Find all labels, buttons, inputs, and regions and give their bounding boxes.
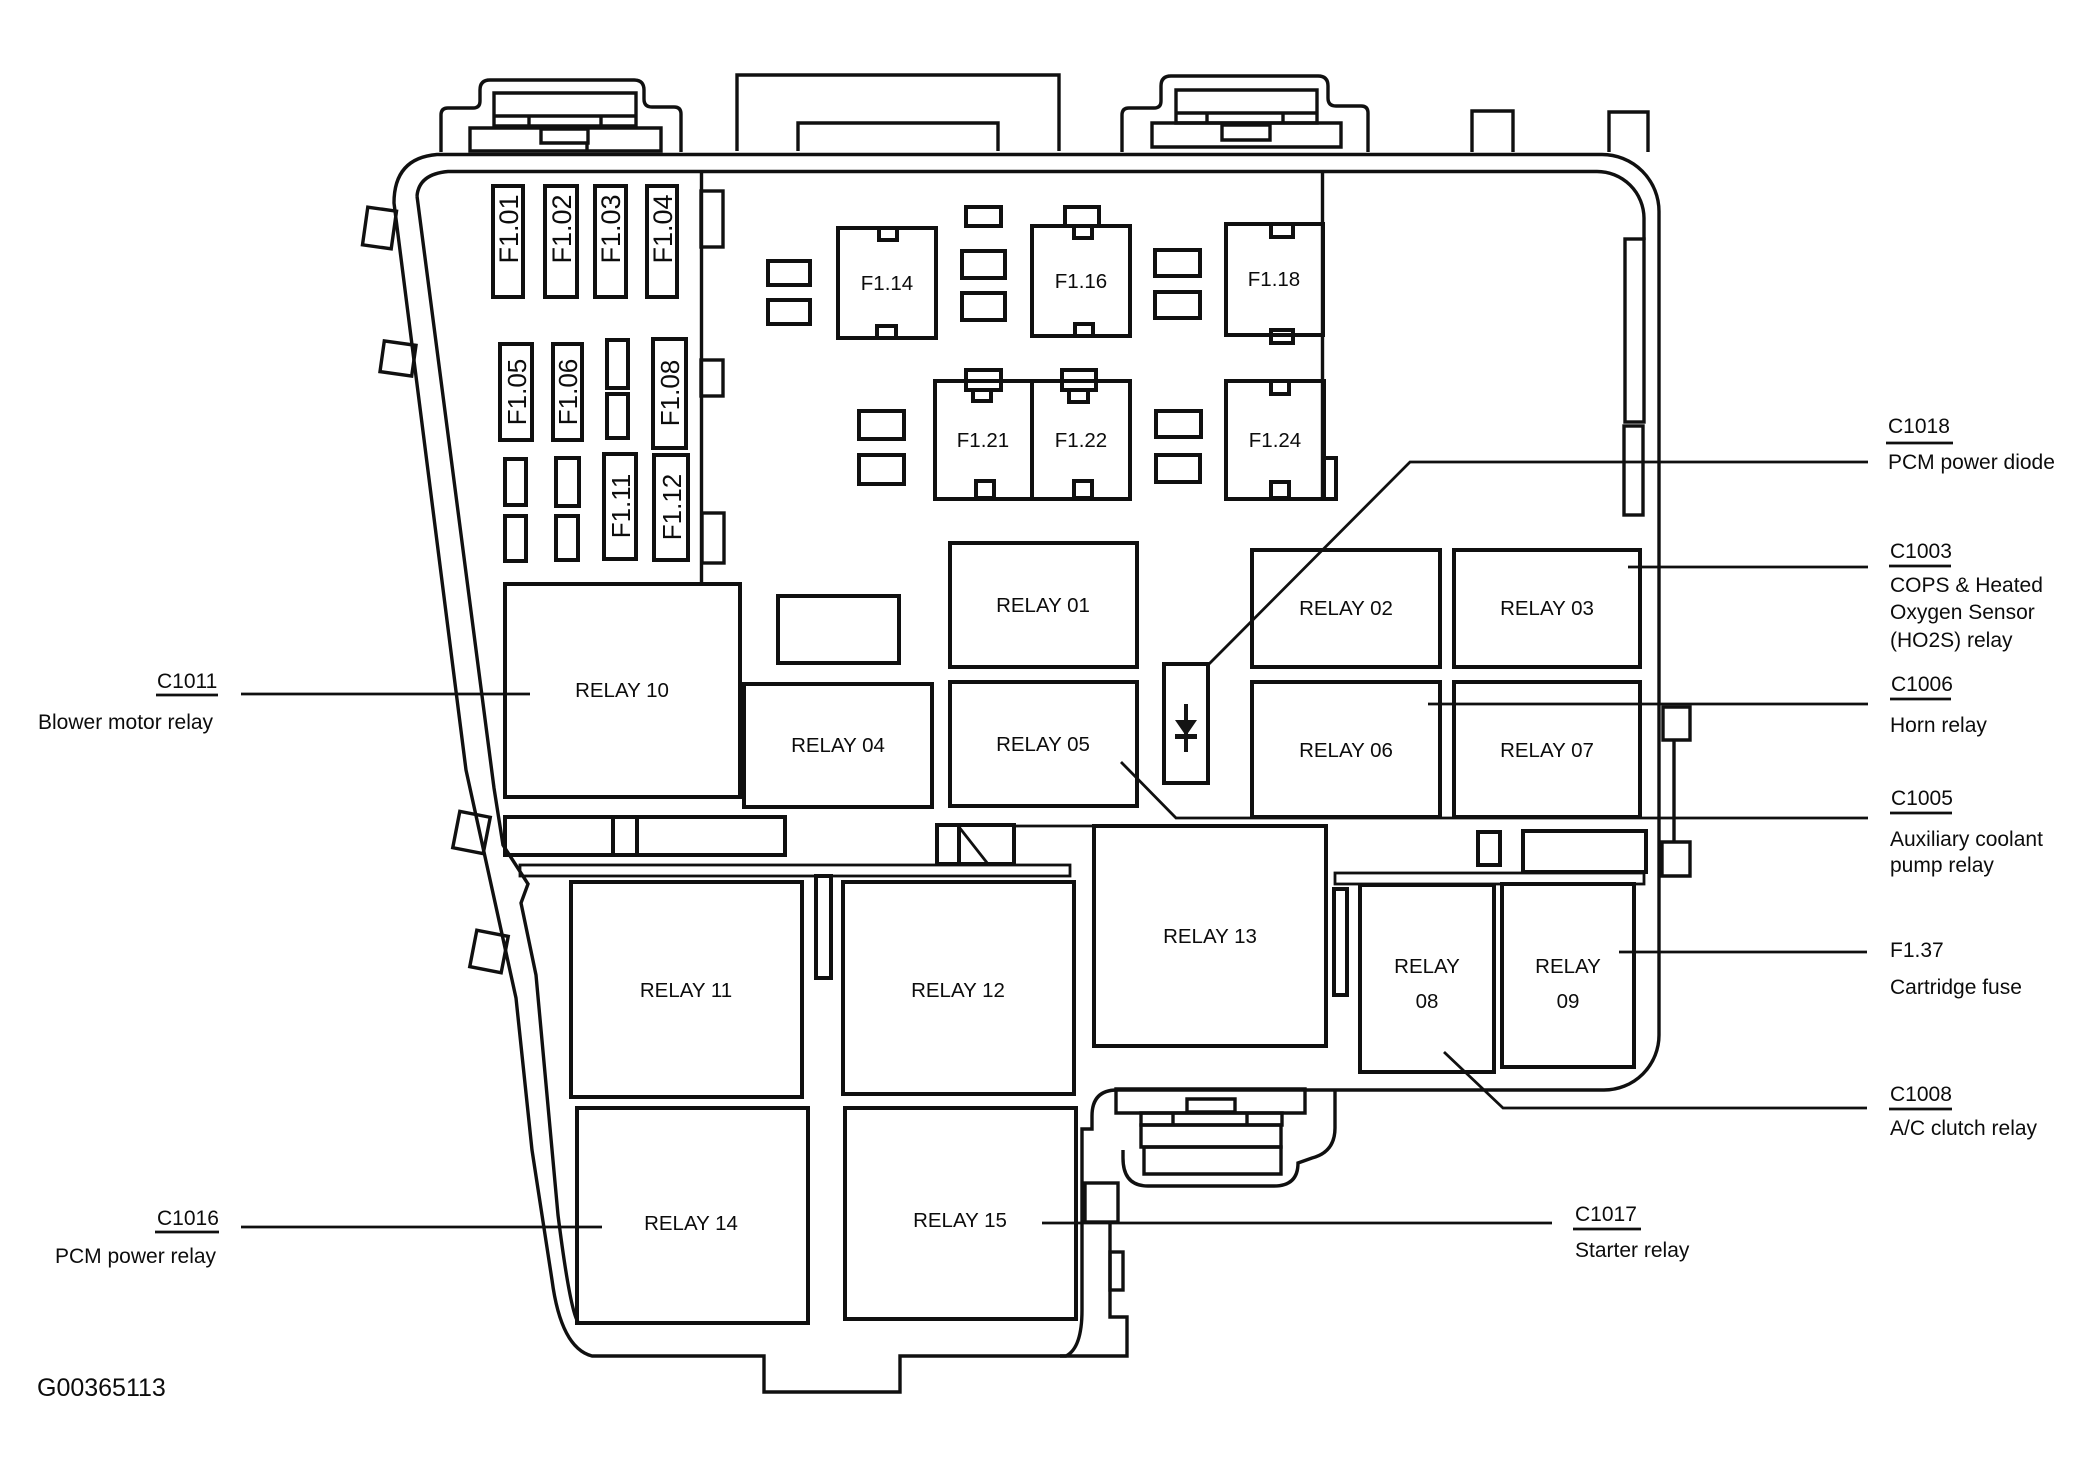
svg-text:F1.06: F1.06 bbox=[553, 359, 583, 426]
svg-text:RELAY 14: RELAY 14 bbox=[644, 1212, 738, 1235]
svg-text:C1003: C1003 bbox=[1890, 540, 1952, 563]
svg-text:F1.02: F1.02 bbox=[547, 194, 577, 263]
svg-text:RELAY 10: RELAY 10 bbox=[575, 679, 669, 702]
svg-text:F1.22: F1.22 bbox=[1055, 429, 1107, 452]
svg-text:RELAY 01: RELAY 01 bbox=[996, 594, 1090, 617]
svg-text:RELAY 04: RELAY 04 bbox=[791, 734, 885, 757]
svg-text:F1.01: F1.01 bbox=[494, 194, 524, 263]
svg-text:08: 08 bbox=[1416, 990, 1439, 1013]
svg-text:RELAY 15: RELAY 15 bbox=[913, 1209, 1007, 1232]
svg-text:F1.03: F1.03 bbox=[596, 194, 626, 263]
svg-text:RELAY: RELAY bbox=[1394, 955, 1460, 978]
svg-text:COPS & Heated: COPS & Heated bbox=[1890, 574, 2043, 597]
svg-text:C1016: C1016 bbox=[157, 1207, 219, 1230]
svg-text:09: 09 bbox=[1557, 990, 1580, 1013]
svg-text:F1.14: F1.14 bbox=[861, 272, 913, 295]
svg-text:C1008: C1008 bbox=[1890, 1083, 1952, 1106]
svg-text:RELAY 12: RELAY 12 bbox=[911, 979, 1005, 1002]
svg-text:F1.12: F1.12 bbox=[657, 474, 687, 541]
svg-text:C1005: C1005 bbox=[1891, 787, 1953, 810]
svg-text:RELAY 03: RELAY 03 bbox=[1500, 597, 1594, 620]
svg-text:RELAY 06: RELAY 06 bbox=[1299, 739, 1393, 762]
svg-text:Starter relay: Starter relay bbox=[1575, 1239, 1690, 1262]
svg-text:RELAY 07: RELAY 07 bbox=[1500, 739, 1594, 762]
svg-text:RELAY 11: RELAY 11 bbox=[640, 979, 732, 1002]
svg-text:F1.18: F1.18 bbox=[1248, 268, 1300, 291]
svg-text:C1011: C1011 bbox=[157, 670, 217, 693]
svg-text:pump relay: pump relay bbox=[1890, 854, 1994, 877]
svg-text:RELAY 13: RELAY 13 bbox=[1163, 925, 1257, 948]
svg-text:F1.04: F1.04 bbox=[648, 194, 678, 263]
svg-text:F1.37: F1.37 bbox=[1890, 939, 1944, 962]
svg-text:RELAY 02: RELAY 02 bbox=[1299, 597, 1393, 620]
svg-text:Auxiliary coolant: Auxiliary coolant bbox=[1890, 828, 2043, 851]
svg-text:(HO2S) relay: (HO2S) relay bbox=[1890, 629, 2013, 652]
svg-text:PCM power diode: PCM power diode bbox=[1888, 451, 2055, 474]
svg-text:F1.05: F1.05 bbox=[502, 359, 532, 426]
svg-text:C1017: C1017 bbox=[1575, 1203, 1637, 1226]
svg-text:Blower motor relay: Blower motor relay bbox=[38, 711, 214, 734]
svg-text:F1.08: F1.08 bbox=[655, 360, 685, 427]
svg-text:Cartridge fuse: Cartridge fuse bbox=[1890, 976, 2022, 999]
svg-text:A/C clutch relay: A/C clutch relay bbox=[1890, 1117, 2038, 1140]
svg-text:F1.11: F1.11 bbox=[606, 474, 636, 539]
svg-text:RELAY: RELAY bbox=[1535, 955, 1601, 978]
svg-text:RELAY 05: RELAY 05 bbox=[996, 733, 1090, 756]
svg-text:G00365113: G00365113 bbox=[37, 1374, 166, 1402]
svg-text:C1006: C1006 bbox=[1891, 673, 1953, 696]
svg-text:F1.21: F1.21 bbox=[957, 429, 1009, 452]
svg-text:F1.16: F1.16 bbox=[1055, 270, 1107, 293]
svg-text:PCM power relay: PCM power relay bbox=[55, 1245, 217, 1268]
svg-text:Horn relay: Horn relay bbox=[1890, 714, 1987, 737]
svg-text:Oxygen Sensor: Oxygen Sensor bbox=[1890, 601, 2035, 624]
svg-text:F1.24: F1.24 bbox=[1249, 429, 1301, 452]
svg-text:C1018: C1018 bbox=[1888, 415, 1950, 438]
